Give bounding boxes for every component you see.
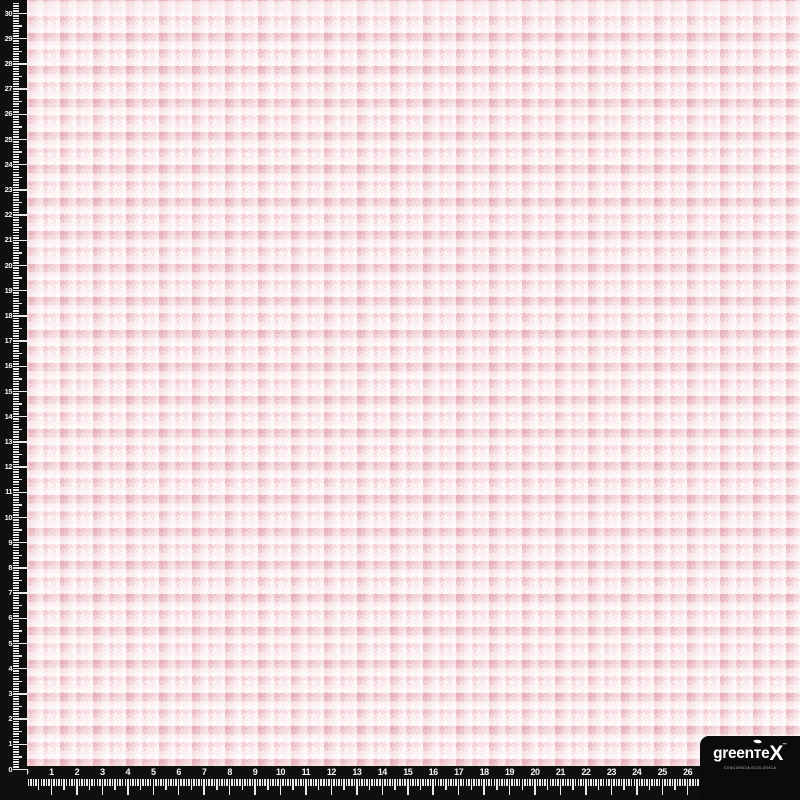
ruler-tick [364, 779, 366, 786]
ruler-label: 21 [551, 768, 569, 777]
leaf-icon [754, 737, 762, 744]
ruler-tick [494, 779, 496, 786]
ruler-tick [259, 779, 261, 786]
ruler-tick [687, 779, 689, 795]
ruler-tick [453, 779, 455, 786]
ruler-tick [219, 779, 221, 786]
ruler-tick [13, 660, 19, 662]
ruler-tick [499, 779, 501, 786]
ruler-tick [13, 277, 22, 279]
ruler-tick [13, 46, 19, 48]
ruler-tick [412, 779, 414, 786]
ruler-tick [13, 66, 19, 68]
ruler-tick [13, 292, 19, 294]
ruler-tick [695, 779, 697, 786]
vertical-ruler: 0123456789101112131415161718192021222324… [0, 0, 27, 800]
ruler-label: 22 [0, 211, 12, 219]
ruler-tick [51, 779, 53, 795]
ruler-tick [320, 779, 322, 786]
ruler-tick [231, 779, 233, 786]
ruler-tick [91, 779, 93, 786]
ruler-tick [13, 534, 19, 536]
ruler-tick [313, 779, 315, 786]
ruler-tick [13, 635, 19, 637]
ruler-tick [170, 779, 172, 786]
ruler-tick [13, 741, 19, 743]
ruler-tick [201, 779, 203, 786]
ruler-tick [13, 565, 19, 567]
ruler-tick [13, 429, 22, 431]
brand-head: greenте [713, 745, 769, 762]
ruler-tick [104, 779, 106, 786]
ruler-tick [229, 779, 231, 795]
ruler-tick [13, 643, 27, 645]
ruler-tick [142, 779, 144, 786]
ruler-tick [366, 779, 368, 786]
ruler-tick [374, 779, 376, 786]
ruler-tick [537, 779, 539, 786]
ruler-tick [13, 15, 19, 17]
ruler-tick [13, 519, 19, 521]
ruler-tick [13, 431, 19, 433]
ruler-tick [119, 779, 121, 786]
ruler-tick [13, 769, 27, 771]
ruler-tick [13, 426, 19, 428]
ruler-tick [460, 779, 462, 786]
ruler-tick [13, 35, 19, 37]
ruler-tick [56, 779, 58, 786]
ruler-tick [33, 779, 35, 786]
ruler-tick [13, 613, 19, 615]
ruler-tick [13, 83, 19, 85]
ruler-tick [13, 658, 19, 660]
ruler-tick [13, 262, 19, 264]
ruler-tick [163, 779, 165, 786]
ruler-tick [343, 779, 345, 790]
ruler-tick [13, 217, 19, 219]
ruler-tick [13, 550, 19, 552]
ruler-tick [13, 537, 19, 539]
ruler-tick [662, 779, 664, 795]
ruler-tick [13, 585, 19, 587]
ruler-tick [13, 353, 22, 355]
ruler-label: 17 [450, 768, 468, 777]
ruler-tick [264, 779, 266, 786]
ruler-tick [272, 779, 274, 786]
ruler-tick [13, 517, 27, 519]
ruler-tick [226, 779, 228, 786]
ruler-tick [13, 381, 19, 383]
ruler-tick [684, 779, 686, 786]
ruler-label: 3 [93, 768, 111, 777]
ruler-tick [13, 235, 19, 237]
ruler-label: 22 [577, 768, 595, 777]
ruler-tick [519, 779, 521, 786]
ruler-tick [81, 779, 83, 786]
ruler-label: 3 [0, 690, 12, 698]
ruler-tick [13, 398, 19, 400]
ruler-label: 7 [195, 768, 213, 777]
ruler-tick [13, 313, 19, 315]
ruler-tick [13, 764, 19, 766]
ruler-tick [626, 779, 628, 786]
ruler-tick [38, 779, 40, 790]
ruler-tick [13, 471, 19, 473]
ruler-tick [290, 779, 292, 786]
ruler-tick [481, 779, 483, 786]
ruler-tick [295, 779, 297, 786]
ruler-tick [137, 779, 139, 786]
ruler-tick [13, 391, 27, 393]
ruler-tick [613, 779, 615, 786]
ruler-tick [13, 164, 27, 166]
ruler-tick [13, 454, 22, 456]
ruler-tick [13, 40, 19, 42]
ruler-tick [122, 779, 124, 786]
ruler-label: 2 [68, 768, 86, 777]
ruler-tick [646, 779, 648, 786]
ruler-tick [511, 779, 513, 786]
logo-tagline: conciencia ecológica [724, 766, 777, 770]
ruler-tick [13, 182, 19, 184]
ruler-tick [415, 779, 417, 786]
ruler-tick [13, 751, 19, 753]
ruler-tick [13, 328, 22, 330]
ruler-tick [13, 577, 19, 579]
ruler-label: 1 [0, 740, 12, 748]
ruler-tick [13, 335, 19, 337]
ruler-tick [13, 595, 19, 597]
ruler-tick [13, 207, 19, 209]
ruler-tick [13, 255, 19, 257]
ruler-label: 0 [0, 766, 12, 774]
ruler-tick [603, 779, 605, 786]
ruler-label: 18 [0, 312, 12, 320]
ruler-tick [13, 567, 27, 569]
ruler-tick [410, 779, 412, 786]
ruler-tick [542, 779, 544, 786]
ruler-tick [13, 691, 19, 693]
ruler-tick [41, 779, 43, 786]
ruler-tick [203, 779, 205, 795]
ruler-tick [13, 146, 19, 148]
ruler-tick [13, 716, 19, 718]
ruler-tick [13, 522, 19, 524]
ruler-tick [183, 779, 185, 786]
ruler-tick [641, 779, 643, 786]
ruler-label: 9 [0, 539, 12, 547]
ruler-tick [13, 23, 19, 25]
ruler-tick [639, 779, 641, 786]
ruler-tick [468, 779, 470, 786]
ruler-tick [333, 779, 335, 786]
ruler-label: 15 [399, 768, 417, 777]
ruler-tick [13, 721, 19, 723]
ruler-tick [13, 174, 19, 176]
ruler-tick [13, 401, 19, 403]
ruler-tick [234, 779, 236, 786]
ruler-tick [30, 779, 32, 786]
ruler-tick [13, 587, 19, 589]
ruler-tick [417, 779, 419, 786]
ruler-label: 28 [0, 60, 12, 68]
ruler-label: 4 [119, 768, 137, 777]
ruler-tick [664, 779, 666, 786]
ruler-tick [371, 779, 373, 786]
ruler-label: 6 [170, 768, 188, 777]
ruler-tick [13, 512, 19, 514]
ruler-tick [557, 779, 559, 786]
ruler-tick [94, 779, 96, 786]
ruler-tick [13, 446, 19, 448]
ruler-label: 11 [0, 488, 12, 496]
ruler-tick [109, 779, 111, 786]
ruler-tick [529, 779, 531, 786]
ruler-tick [13, 350, 19, 352]
ruler-label: 25 [0, 136, 12, 144]
ruler-tick [13, 177, 22, 179]
ruler-label: 5 [0, 640, 12, 648]
ruler-tick [13, 318, 19, 320]
ruler-tick [478, 779, 480, 786]
ruler-tick [193, 779, 195, 786]
ruler-tick [13, 383, 19, 385]
ruler-tick [99, 779, 101, 786]
ruler-label: 8 [221, 768, 239, 777]
ruler-tick [13, 300, 19, 302]
ruler-tick [682, 779, 684, 786]
ruler-tick [13, 416, 27, 418]
ruler-tick [13, 252, 22, 254]
ruler-tick [150, 779, 152, 786]
ruler-tick [326, 779, 328, 786]
ruler-tick [13, 315, 27, 317]
ruler-tick [496, 779, 498, 790]
ruler-tick [13, 696, 19, 698]
ruler-tick [35, 779, 37, 786]
ruler-tick [659, 779, 661, 786]
ruler-tick [63, 779, 65, 790]
ruler-tick [102, 779, 104, 795]
ruler-tick [13, 260, 19, 262]
ruler-tick [13, 204, 19, 206]
ruler-tick [501, 779, 503, 786]
ruler-tick [13, 371, 19, 373]
ruler-tick [186, 779, 188, 786]
ruler-tick [606, 779, 608, 786]
ruler-tick [13, 539, 19, 541]
ruler-tick [13, 202, 22, 204]
ruler-tick [13, 424, 19, 426]
ruler-tick [13, 325, 19, 327]
ruler-tick [13, 497, 19, 499]
ruler-tick [13, 33, 19, 35]
ruler-tick [13, 172, 19, 174]
ruler-tick [13, 406, 19, 408]
ruler-tick [13, 441, 27, 443]
ruler-tick [239, 779, 241, 786]
ruler-tick [13, 330, 19, 332]
ruler-tick [13, 91, 19, 93]
ruler-tick [13, 676, 19, 678]
ruler-tick [168, 779, 170, 786]
ruler-tick [13, 30, 19, 32]
ruler-tick [13, 607, 19, 609]
ruler-tick [13, 366, 27, 368]
ruler-tick [488, 779, 490, 786]
ruler-tick [387, 779, 389, 786]
ruler-tick [13, 396, 19, 398]
ruler-tick [13, 224, 19, 226]
ruler-tick [524, 779, 526, 786]
ruler-tick [455, 779, 457, 786]
ruler-tick [547, 779, 549, 790]
ruler-tick [443, 779, 445, 786]
ruler-tick [562, 779, 564, 786]
ruler-tick [211, 779, 213, 786]
ruler-tick [13, 562, 19, 564]
ruler-tick [13, 469, 19, 471]
ruler-tick [336, 779, 338, 786]
ruler-tick [13, 620, 19, 622]
plaid-band-overlay [27, 0, 800, 766]
ruler-label: 14 [373, 768, 391, 777]
ruler-tick [282, 779, 284, 786]
ruler-tick [527, 779, 529, 786]
ruler-tick [463, 779, 465, 786]
ruler-tick [13, 257, 19, 259]
ruler-tick [13, 542, 27, 544]
ruler-tick [13, 527, 19, 529]
ruler-tick [173, 779, 175, 786]
ruler-tick [394, 779, 396, 790]
ruler-tick [303, 779, 305, 786]
ruler-tick [580, 779, 582, 786]
ruler-tick [13, 711, 19, 713]
ruler-tick [669, 779, 671, 786]
ruler-tick [692, 779, 694, 786]
ruler-tick [270, 779, 272, 786]
ruler-tick [13, 310, 19, 312]
ruler-tick [13, 58, 19, 60]
ruler-tick [13, 504, 22, 506]
ruler-tick [13, 575, 19, 577]
ruler-tick [13, 597, 19, 599]
ruler-tick [198, 779, 200, 786]
ruler-tick [257, 779, 259, 786]
ruler-tick [13, 61, 19, 63]
ruler-label: 20 [0, 262, 12, 270]
ruler-tick [13, 640, 19, 642]
ruler-tick [583, 779, 585, 786]
ruler-tick [13, 749, 19, 751]
ruler-tick [595, 779, 597, 786]
ruler-tick [130, 779, 132, 786]
ruler-tick [550, 779, 552, 786]
ruler-tick [13, 686, 19, 688]
ruler-tick [13, 683, 19, 685]
ruler-tick [125, 779, 127, 786]
ruler-tick [397, 779, 399, 786]
ruler-tick [522, 779, 524, 790]
ruler-tick [13, 600, 19, 602]
ruler-tick [506, 779, 508, 786]
horizontal-ruler: 0123456789101112131415161718192021222324… [0, 766, 800, 800]
ruler-tick [13, 739, 19, 741]
ruler-label: 30 [0, 10, 12, 18]
ruler-tick [13, 10, 19, 12]
ruler-tick [514, 779, 516, 786]
ruler-tick [13, 413, 19, 415]
ruler-tick [13, 265, 27, 267]
ruler-tick [13, 348, 19, 350]
ruler-tick [13, 154, 19, 156]
ruler-tick [221, 779, 223, 786]
ruler-label: 13 [348, 768, 366, 777]
ruler-tick [13, 169, 19, 171]
ruler-tick [13, 628, 19, 630]
ruler-label: 26 [679, 768, 697, 777]
ruler-tick [13, 232, 19, 234]
ruler-tick [13, 489, 19, 491]
ruler-tick [13, 713, 19, 715]
ruler-tick [147, 779, 149, 786]
ruler-tick [13, 280, 19, 282]
ruler-tick [13, 250, 19, 252]
ruler-tick [667, 779, 669, 786]
ruler-tick [422, 779, 424, 786]
ruler-tick [13, 197, 19, 199]
ruler-tick [287, 779, 289, 786]
ruler-tick [252, 779, 254, 786]
ruler-tick [61, 779, 63, 786]
ruler-tick [13, 189, 27, 191]
ruler-tick [13, 386, 19, 388]
ruler-tick [476, 779, 478, 786]
ruler-tick [491, 779, 493, 786]
ruler-tick [13, 28, 19, 30]
ruler-tick [262, 779, 264, 786]
ruler-tick [112, 779, 114, 786]
ruler-tick [13, 733, 19, 735]
ruler-tick [13, 98, 19, 100]
ruler-tick [450, 779, 452, 786]
ruler-tick [389, 779, 391, 786]
ruler-tick [13, 20, 19, 22]
ruler-tick [13, 96, 19, 98]
ruler-tick [13, 761, 19, 763]
ruler-tick [13, 340, 27, 342]
ruler-tick [466, 779, 468, 786]
ruler-tick [13, 295, 19, 297]
ruler-tick [13, 114, 27, 116]
ruler-tick [13, 25, 22, 27]
ruler-tick [13, 161, 19, 163]
ruler-tick [13, 245, 19, 247]
ruler-tick [13, 572, 19, 574]
ruler-tick [79, 779, 81, 786]
ruler-tick [13, 338, 19, 340]
ruler-tick [13, 136, 19, 138]
ruler-tick [430, 779, 432, 786]
ruler-tick [13, 267, 19, 269]
ruler-tick [13, 109, 19, 111]
ruler-tick [13, 68, 19, 70]
ruler-tick [132, 779, 134, 786]
ruler-tick [13, 718, 27, 720]
ruler-tick [13, 403, 22, 405]
ruler-tick [578, 779, 580, 786]
